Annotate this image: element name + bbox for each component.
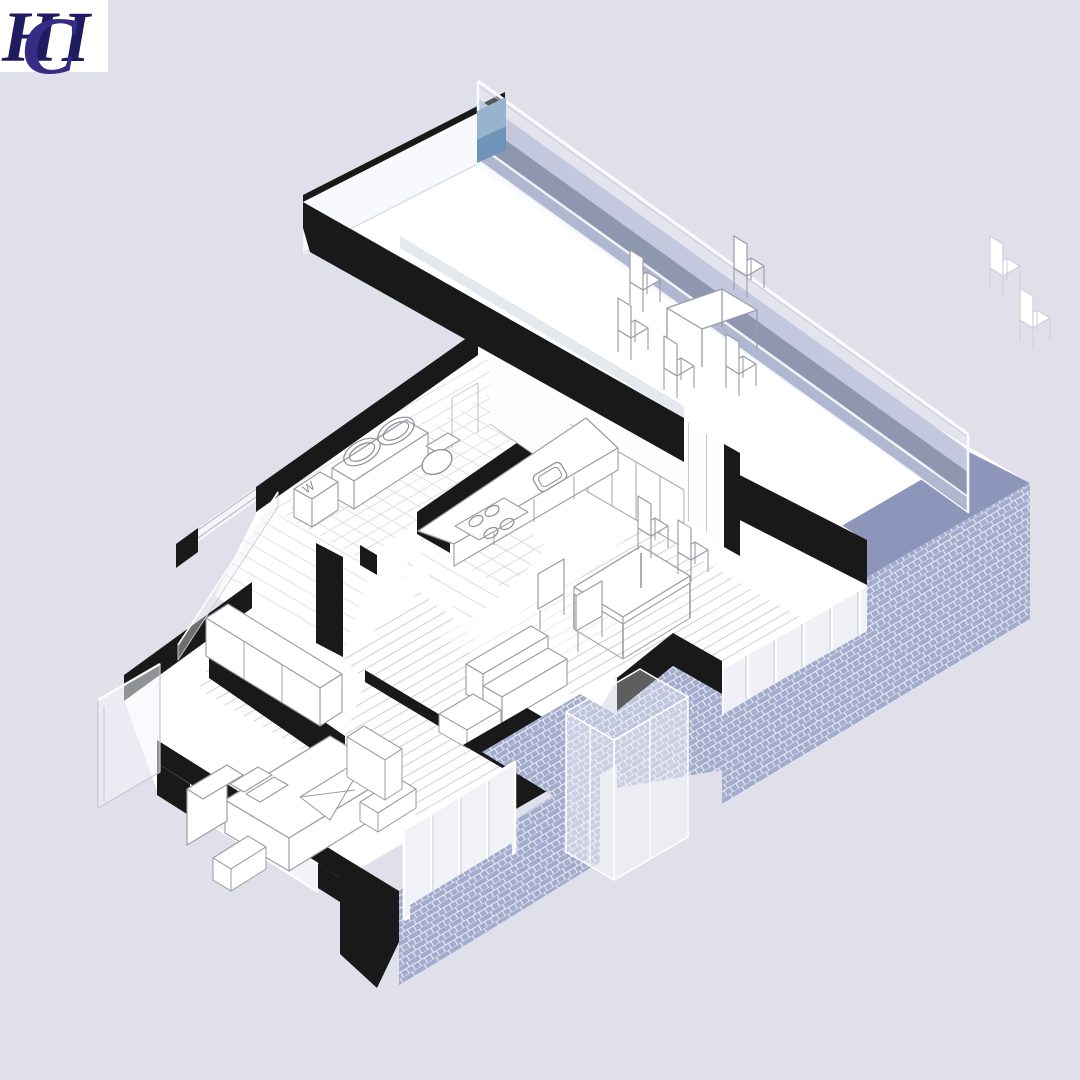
- svg-text:C: C: [22, 0, 78, 91]
